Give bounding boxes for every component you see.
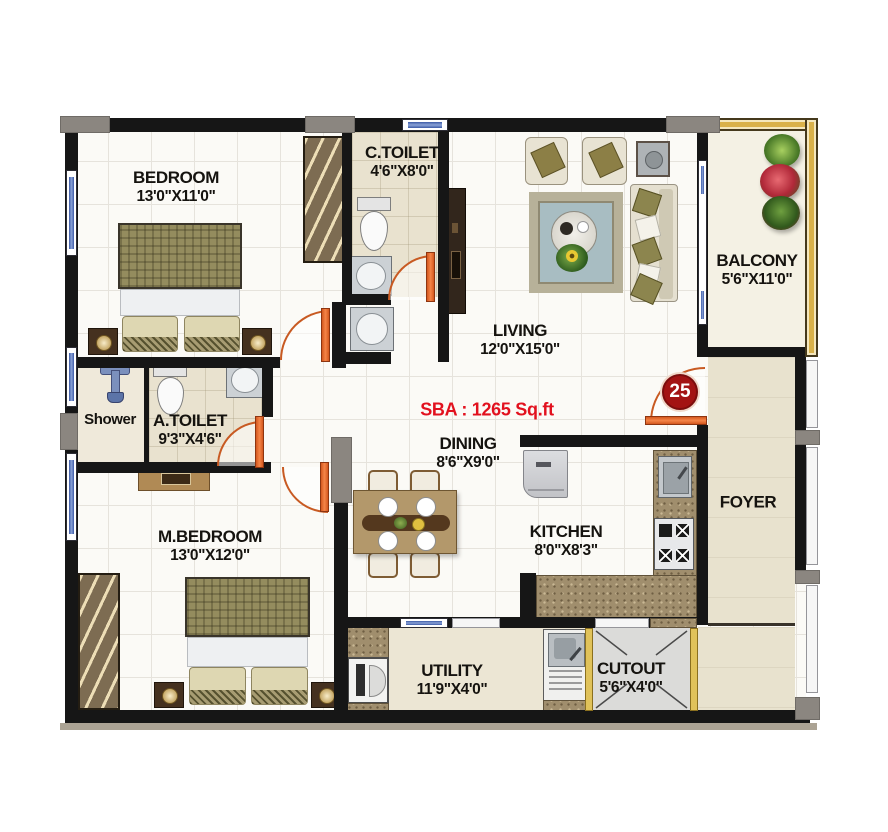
wall-mbedroom-right xyxy=(334,503,348,713)
utility-label: UTILITY 11'9"X4'0" xyxy=(417,662,488,698)
kitchen-sink xyxy=(658,456,692,498)
wall-kitchen-top xyxy=(520,435,708,447)
unit-number-badge: 25 xyxy=(662,374,698,410)
room-dims: 9'3"X4'6" xyxy=(153,431,227,448)
kitchen-counter-bottom xyxy=(536,575,697,620)
column-block xyxy=(795,697,820,720)
dining-table xyxy=(353,490,457,554)
exterior-door-panel xyxy=(806,360,818,428)
room-dims: 8'0"X8'3" xyxy=(530,542,603,559)
ctoilet-window xyxy=(402,119,448,131)
dining-label: DINING 8'6"X9'0" xyxy=(436,435,499,471)
shower-label: Shower xyxy=(84,412,136,429)
wall-ctoilet-living xyxy=(438,132,449,362)
wall-bottom xyxy=(65,710,810,723)
living-label: LIVING 12'0"X15'0" xyxy=(480,322,560,358)
bedroom-pillow xyxy=(184,316,240,352)
balcony-plant xyxy=(760,164,800,199)
mbedroom-nightstand xyxy=(154,682,184,708)
floor-plan: 25 BEDROOM 13'0"X11'0" C.TOILET 4'6"X8'0… xyxy=(0,0,888,832)
room-name: A.TOILET xyxy=(153,412,227,431)
armchair xyxy=(525,137,568,185)
cutout-top-counter xyxy=(650,618,697,628)
bedroom-window xyxy=(66,170,77,256)
balcony-rail-right xyxy=(805,118,818,357)
entrance-door xyxy=(645,416,707,425)
utility-counter-left xyxy=(345,627,389,658)
bedroom-nightstand xyxy=(242,328,272,355)
room-name: LIVING xyxy=(480,322,560,341)
wall-ctoilet-bottom xyxy=(345,294,391,305)
room-dims: 13'0"X12'0" xyxy=(158,547,262,564)
bedroom-bed-blanket xyxy=(118,223,242,289)
column-block xyxy=(305,116,355,133)
fridge xyxy=(523,450,568,498)
utility-window xyxy=(400,618,448,628)
cutout-top-panel xyxy=(595,618,649,628)
stove xyxy=(654,518,694,570)
sba-area-text: SBA : 1265 Sq.ft xyxy=(420,400,554,421)
bedroom-pillow xyxy=(122,316,178,352)
balcony-plant xyxy=(764,134,800,167)
cutout-label: CUTOUT 5'6"X4'0" xyxy=(597,660,665,696)
foyer-divider-line xyxy=(708,623,795,626)
shower-head-icon xyxy=(98,362,132,404)
side-table xyxy=(636,141,670,177)
mbedroom-label: M.BEDROOM 13'0"X12'0" xyxy=(158,528,262,564)
armchair xyxy=(582,137,627,185)
bedroom-door xyxy=(321,308,330,362)
coffee-table-flower xyxy=(566,250,578,262)
foyer-floor xyxy=(708,357,795,625)
wall-foyer-right xyxy=(795,355,806,572)
bedroom-label: BEDROOM 13'0"X11'0" xyxy=(133,169,219,205)
room-dims: 12'0"X15'0" xyxy=(480,341,560,358)
room-name: DINING xyxy=(436,435,499,454)
cutout-strip-right xyxy=(690,628,698,711)
mbedroom-door xyxy=(320,462,329,512)
ctoilet-tank xyxy=(357,197,391,211)
dining-chair xyxy=(410,552,440,578)
balcony-plant xyxy=(762,196,800,230)
exterior-door-panel xyxy=(806,585,818,693)
ctoilet-basin xyxy=(350,256,392,296)
kitchen-label: KITCHEN 8'0"X8'3" xyxy=(530,523,603,559)
foyer-lower-floor xyxy=(698,627,795,711)
mbedroom-bed-sheet xyxy=(187,637,308,667)
passage-basin xyxy=(350,307,394,351)
mbedroom-pillow xyxy=(251,667,308,705)
room-name: UTILITY xyxy=(417,662,488,681)
room-dims: 13'0"X11'0" xyxy=(133,188,219,205)
room-name: C.TOILET xyxy=(365,144,439,163)
wall-bedroom-bottom xyxy=(78,357,280,368)
wall-atoilet-right xyxy=(262,357,273,417)
room-dims: 5'6"X4'0" xyxy=(597,679,665,696)
mbedroom-pillow xyxy=(189,667,246,705)
foyer-label: FOYER xyxy=(720,494,777,513)
wall-shower-divider xyxy=(144,362,149,462)
wall-bedroom-ctoilet xyxy=(342,132,352,304)
balcony-slider-window xyxy=(698,160,707,325)
balcony-label: BALCONY 5'6"X11'0" xyxy=(716,252,797,288)
room-dims: 4'6"X8'0" xyxy=(365,163,439,180)
ctoilet-door xyxy=(426,252,435,302)
wall-niche-bottom xyxy=(346,352,391,364)
column-block xyxy=(795,430,820,445)
column-block xyxy=(331,437,352,503)
column-block xyxy=(60,116,110,133)
column-block xyxy=(795,570,820,584)
room-name: FOYER xyxy=(720,494,777,513)
room-dims: 8'6"X9'0" xyxy=(436,454,499,471)
room-name: BALCONY xyxy=(716,252,797,271)
utility-access-door xyxy=(452,618,500,628)
column-block xyxy=(666,116,720,133)
room-name: Shower xyxy=(84,412,136,429)
column-block xyxy=(60,413,78,450)
bedroom-nightstand xyxy=(88,328,118,355)
mbedroom-wardrobe xyxy=(78,573,120,710)
wall-bottom-shadow xyxy=(60,723,817,730)
cutout-strip-left xyxy=(585,628,593,711)
wall-kitchen-corner xyxy=(520,573,536,622)
room-name: M.BEDROOM xyxy=(158,528,262,547)
utility-sink xyxy=(543,629,588,701)
wall-hall-piece xyxy=(332,302,346,368)
room-name: KITCHEN xyxy=(530,523,603,542)
room-name: CUTOUT xyxy=(597,660,665,679)
wall-foyer-left xyxy=(697,425,708,625)
room-name: BEDROOM xyxy=(133,169,219,188)
washing-machine xyxy=(347,657,389,704)
room-dims: 5'6"X11'0" xyxy=(716,271,797,288)
shower-window xyxy=(66,347,77,407)
bedroom-bed-sheet xyxy=(120,289,240,316)
mbedroom-bed-blanket xyxy=(185,577,310,637)
wall-top xyxy=(65,118,702,132)
atoilet-label: A.TOILET 9'3"X4'6" xyxy=(153,412,227,448)
exterior-door-panel xyxy=(806,447,818,565)
sofa xyxy=(630,184,678,302)
dining-chair xyxy=(368,552,398,578)
ctoilet-label: C.TOILET 4'6"X8'0" xyxy=(365,144,439,180)
mbedroom-window xyxy=(66,453,77,541)
room-dims: 11'9"X4'0" xyxy=(417,681,488,698)
atoilet-door xyxy=(255,416,264,468)
bedroom-wardrobe xyxy=(303,136,344,263)
